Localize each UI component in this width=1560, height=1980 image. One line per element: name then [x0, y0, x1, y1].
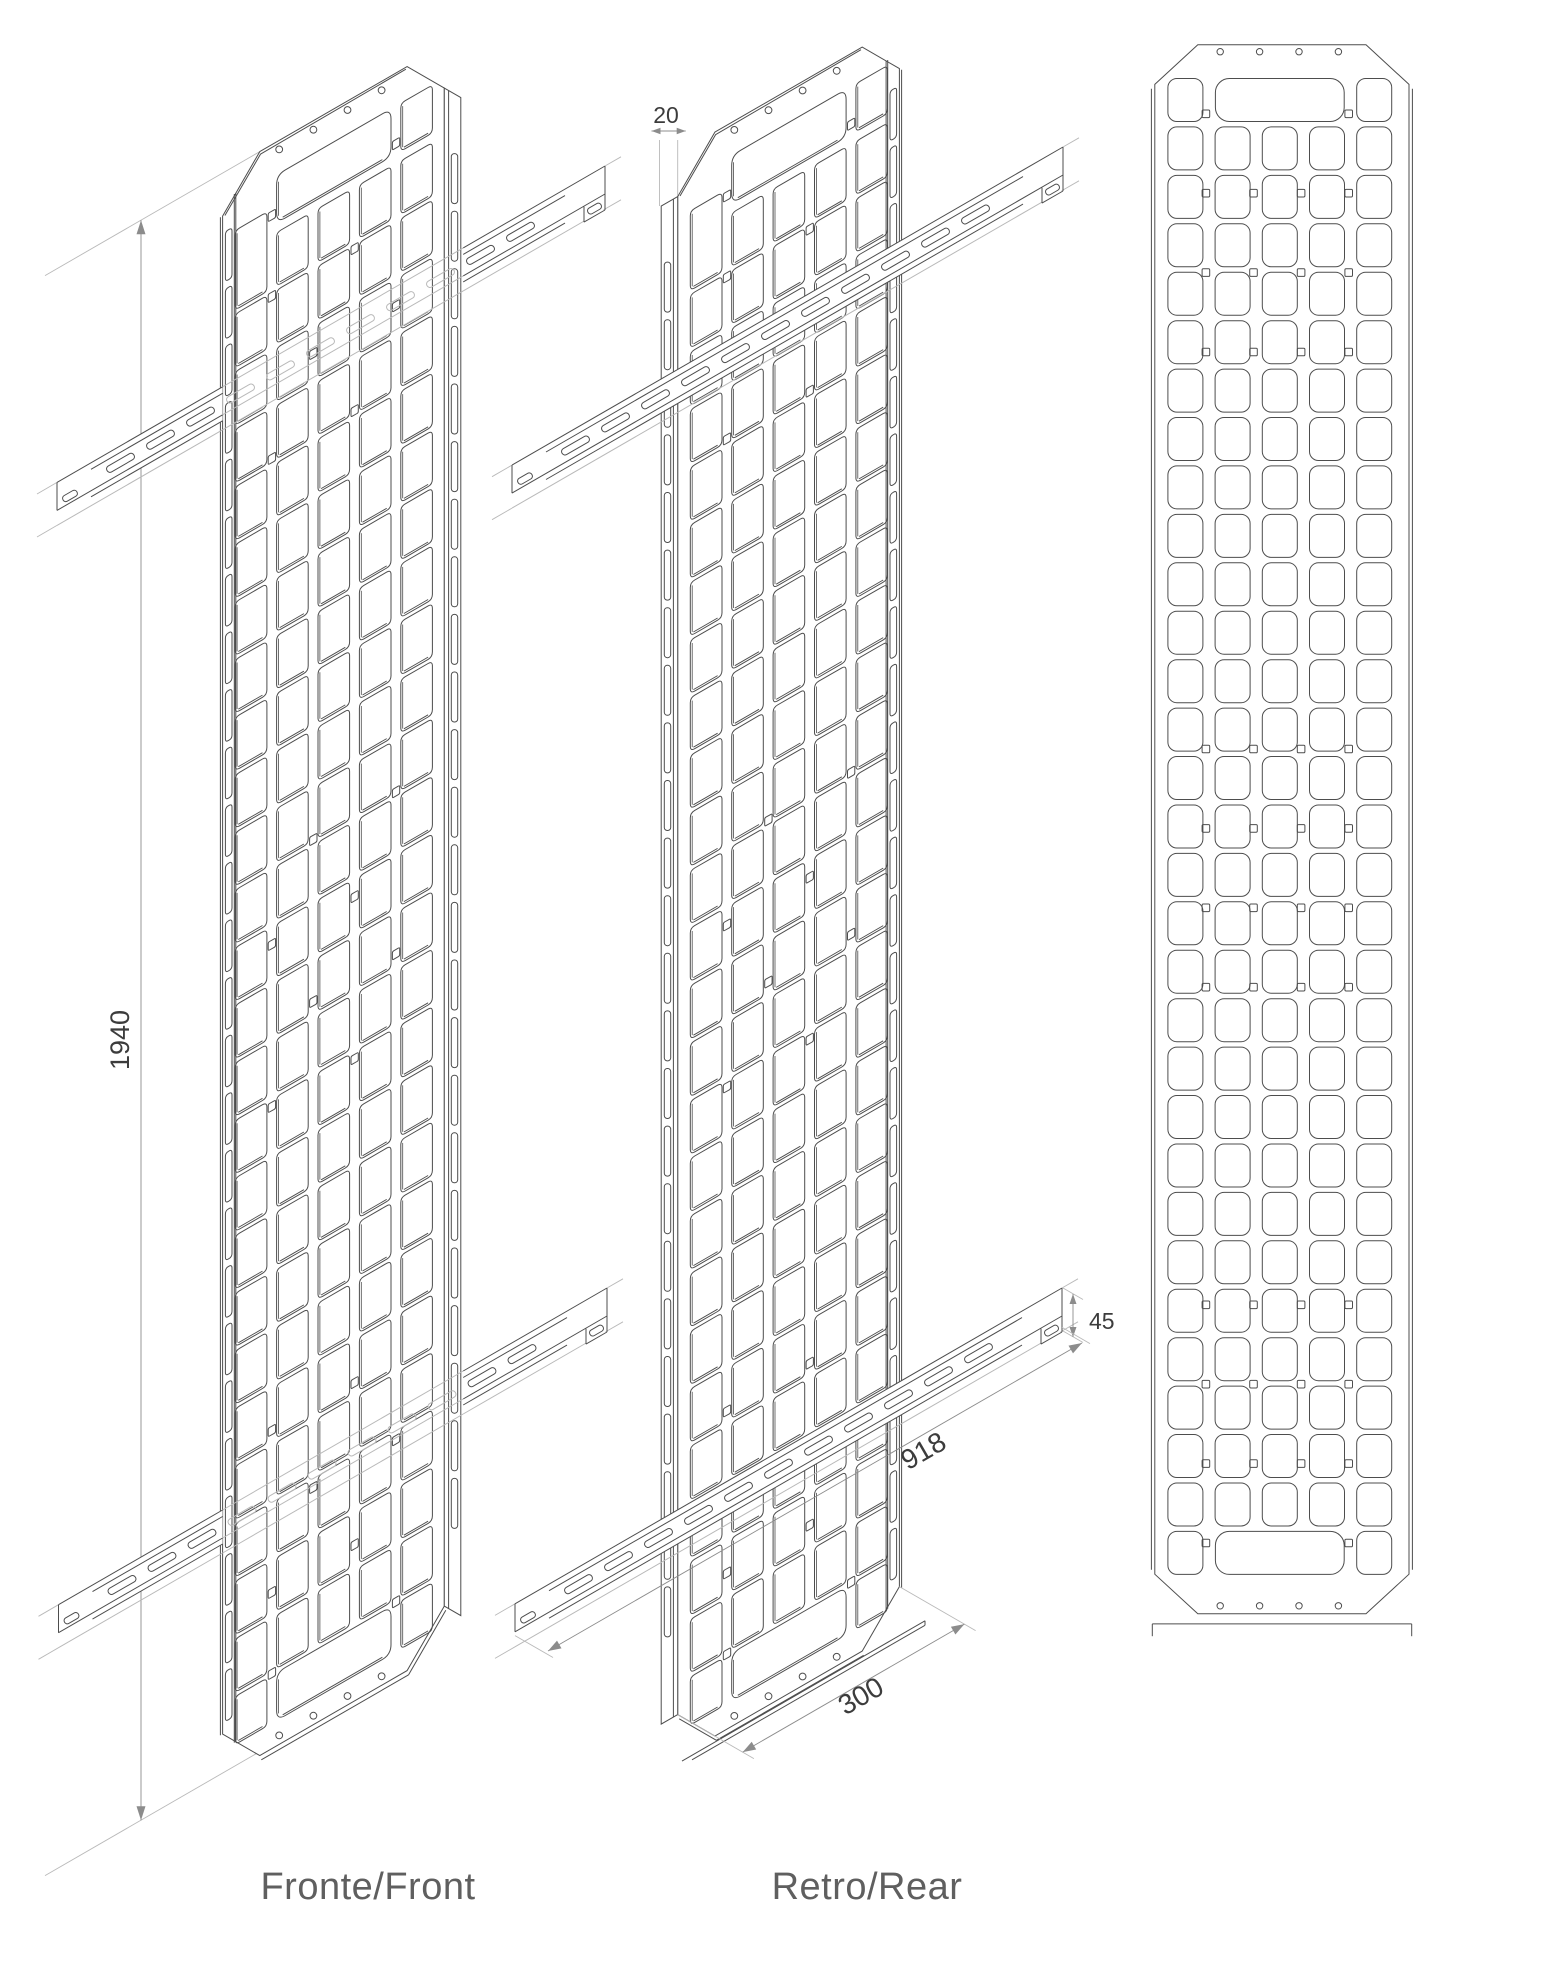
svg-text:Retro/Rear: Retro/Rear: [772, 1866, 963, 1908]
svg-text:20: 20: [653, 102, 679, 128]
svg-text:1940: 1940: [105, 1010, 135, 1070]
svg-text:Fronte/Front: Fronte/Front: [260, 1866, 475, 1908]
svg-text:45: 45: [1089, 1308, 1115, 1334]
